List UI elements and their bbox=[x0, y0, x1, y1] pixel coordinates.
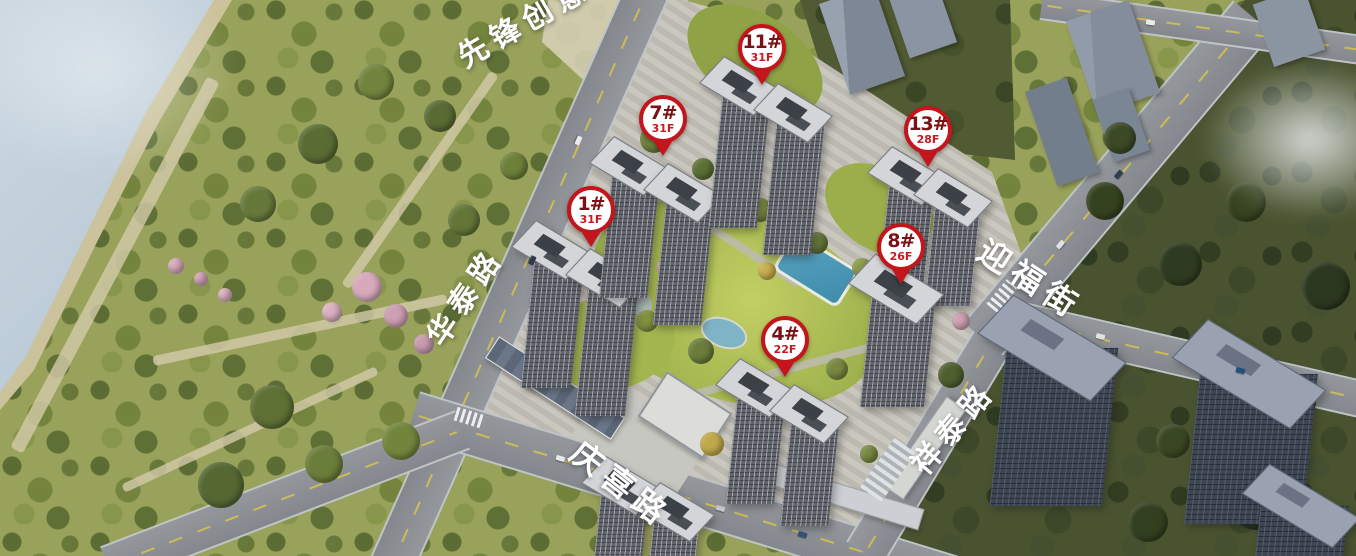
marker-building-number: 11# bbox=[742, 33, 781, 52]
tower-1-right bbox=[582, 278, 632, 416]
tree bbox=[860, 445, 878, 463]
blossom-tree bbox=[384, 304, 408, 328]
tree bbox=[198, 462, 244, 508]
blossom-tree bbox=[194, 272, 208, 286]
marker-bubble: 13# 28F bbox=[904, 106, 952, 154]
building-marker-8[interactable]: 8# 26F bbox=[873, 223, 929, 284]
marker-pointer bbox=[918, 151, 938, 167]
marker-bubble: 7# 31F bbox=[639, 95, 687, 143]
tower-7-right bbox=[660, 193, 708, 325]
tree bbox=[1158, 242, 1202, 286]
tree bbox=[826, 358, 848, 380]
marker-floor-count: 26F bbox=[890, 251, 913, 263]
tree bbox=[250, 385, 294, 429]
tree bbox=[1104, 122, 1136, 154]
blossom-tree bbox=[168, 258, 184, 274]
building-marker-11[interactable]: 11# 31F bbox=[734, 24, 790, 85]
marker-bubble: 8# 26F bbox=[877, 223, 925, 271]
tree bbox=[358, 64, 394, 100]
marker-pointer bbox=[653, 140, 673, 156]
marker-bubble: 4# 22F bbox=[761, 316, 809, 364]
tree bbox=[1226, 182, 1266, 222]
tree bbox=[500, 152, 528, 180]
car bbox=[1146, 19, 1156, 25]
marker-pointer bbox=[775, 361, 795, 377]
city-tower bbox=[998, 348, 1110, 506]
tree bbox=[1302, 262, 1350, 310]
tree bbox=[424, 100, 456, 132]
marker-bubble: 1# 31F bbox=[567, 186, 615, 234]
autumn-tree bbox=[700, 432, 724, 456]
tower-11-right bbox=[770, 113, 818, 255]
tree bbox=[298, 124, 338, 164]
tree bbox=[1156, 424, 1190, 458]
tree bbox=[1128, 502, 1168, 542]
blossom-tree bbox=[218, 288, 232, 302]
tree bbox=[382, 422, 420, 460]
marker-floor-count: 22F bbox=[774, 344, 797, 356]
building-marker-13[interactable]: 13# 28F bbox=[900, 106, 956, 167]
marker-floor-count: 31F bbox=[751, 52, 774, 64]
building-marker-7[interactable]: 7# 31F bbox=[635, 95, 691, 156]
marker-floor-count: 28F bbox=[917, 134, 940, 146]
tree bbox=[688, 338, 714, 364]
city-tower bbox=[1258, 506, 1346, 556]
marker-building-number: 4# bbox=[771, 325, 798, 344]
marker-pointer bbox=[581, 231, 601, 247]
marker-building-number: 7# bbox=[649, 104, 676, 123]
blossom-tree bbox=[952, 312, 970, 330]
building-marker-1[interactable]: 1# 31F bbox=[563, 186, 619, 247]
tower-4-right bbox=[786, 414, 834, 526]
tree bbox=[448, 204, 480, 236]
marker-pointer bbox=[891, 268, 911, 284]
building-marker-4[interactable]: 4# 22F bbox=[757, 316, 813, 377]
autumn-tree bbox=[758, 262, 776, 280]
blossom-tree bbox=[352, 272, 382, 302]
marker-building-number: 13# bbox=[908, 115, 947, 134]
tree bbox=[240, 186, 276, 222]
marker-building-number: 8# bbox=[887, 232, 914, 251]
marker-floor-count: 31F bbox=[580, 214, 603, 226]
tower-8 bbox=[866, 289, 930, 407]
marker-bubble: 11# 31F bbox=[738, 24, 786, 72]
tree bbox=[692, 158, 714, 180]
site-plan: 华泰路 庆喜路 祥泰路 迎福街 先锋创意 1# 31F 7# 31F 11# 3… bbox=[0, 0, 1356, 556]
tree bbox=[1086, 182, 1124, 220]
blossom-tree bbox=[322, 302, 342, 322]
marker-pointer bbox=[752, 69, 772, 85]
marker-building-number: 1# bbox=[577, 195, 604, 214]
tree bbox=[305, 445, 343, 483]
marker-floor-count: 31F bbox=[652, 123, 675, 135]
